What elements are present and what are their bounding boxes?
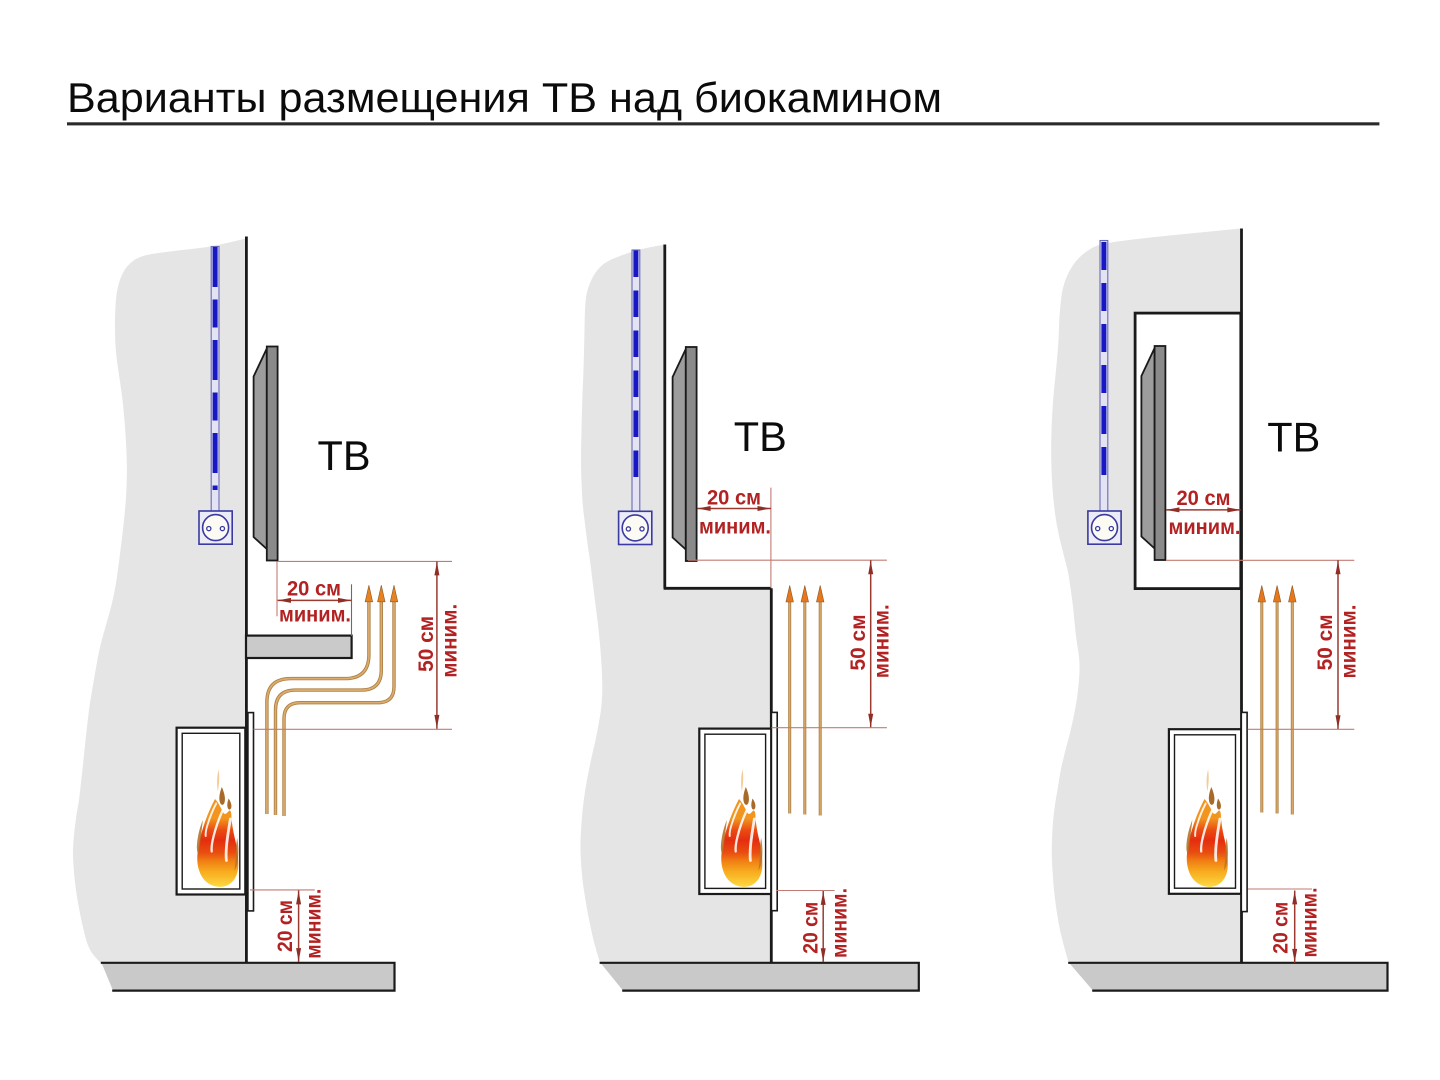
svg-text:20 см: 20 см xyxy=(274,900,297,952)
svg-text:миним.: миним. xyxy=(1338,605,1361,679)
svg-text:миним.: миним. xyxy=(279,604,351,627)
svg-text:20 см: 20 см xyxy=(707,487,761,510)
svg-text:20 см: 20 см xyxy=(1270,902,1293,954)
svg-text:ТВ: ТВ xyxy=(734,413,787,460)
svg-text:50 см: 50 см xyxy=(415,616,438,672)
svg-text:миним.: миним. xyxy=(303,889,326,959)
svg-text:50 см: 50 см xyxy=(847,615,870,671)
svg-text:миним.: миним. xyxy=(438,604,461,678)
svg-text:20 см: 20 см xyxy=(1177,487,1231,510)
svg-text:миним.: миним. xyxy=(1298,888,1321,958)
svg-text:50 см: 50 см xyxy=(1314,614,1337,670)
svg-text:миним.: миним. xyxy=(699,516,771,539)
svg-text:Варианты размещения ТВ над био: Варианты размещения ТВ над биокамином xyxy=(67,74,942,121)
svg-text:ТВ: ТВ xyxy=(318,432,371,479)
svg-text:миним.: миним. xyxy=(828,888,851,958)
svg-text:20 см: 20 см xyxy=(800,902,823,954)
svg-text:ТВ: ТВ xyxy=(1267,413,1320,460)
svg-text:20 см: 20 см xyxy=(287,577,341,600)
svg-text:миним.: миним. xyxy=(871,604,894,678)
svg-text:миним.: миним. xyxy=(1169,516,1241,539)
